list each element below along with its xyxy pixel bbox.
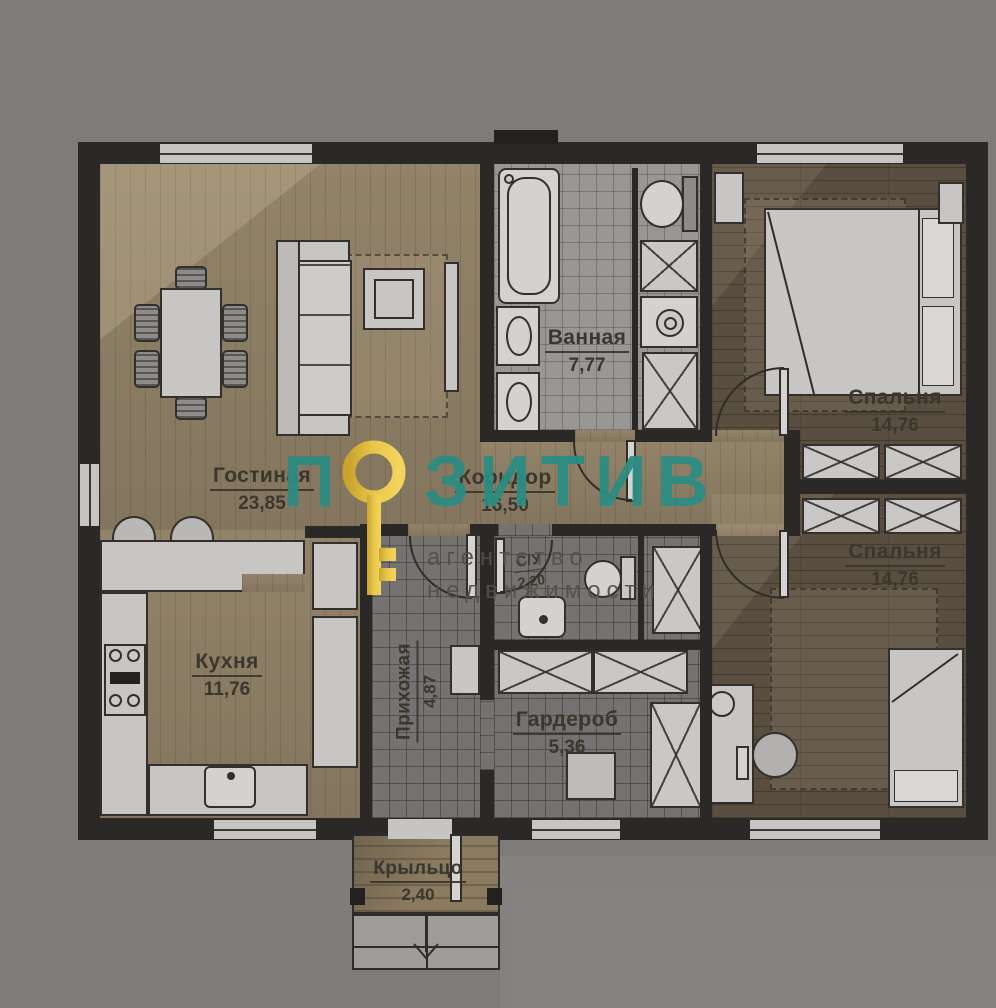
vent-stub	[494, 130, 558, 144]
tv-console	[444, 262, 459, 392]
window-living	[160, 144, 312, 163]
label-wardrobe-area: 5,36	[549, 737, 586, 759]
label-bedroom-top-area: 14,76	[871, 415, 919, 437]
wall-bedroom-bottom-left	[700, 530, 712, 818]
label-hallway-area: 4,87	[421, 675, 441, 708]
wc-door-threshold	[498, 524, 552, 536]
window-left-wall	[80, 464, 99, 526]
desk-lamp	[709, 691, 735, 717]
label-kitchen-name: Кухня	[192, 650, 261, 677]
kitchen-faucet	[227, 772, 235, 780]
bath-toilet-bowl	[640, 180, 684, 228]
floor-plan-image: Гостиная 23,85 Кухня 11,76 Ванная 7,77 К…	[0, 0, 996, 1008]
built-in-wardrobe-bottom-1	[802, 498, 880, 534]
bathroom-door-leaf	[626, 440, 636, 502]
bath-cabinet	[640, 240, 698, 292]
label-living-name: Гостиная	[210, 464, 314, 491]
stove-burner-3	[109, 694, 122, 707]
kitchen-sink	[204, 766, 256, 808]
wc-faucet	[539, 615, 548, 624]
window-bedroom-top	[757, 144, 903, 163]
label-wardrobe: Гардероб 5,36	[492, 708, 642, 759]
kitchen-tall-cabinet	[312, 616, 358, 768]
label-bathroom: Ванная 7,77	[512, 326, 662, 377]
wall-bath-bottom-left	[494, 430, 575, 442]
label-bedroom-bottom: Спальня 14,76	[820, 540, 970, 591]
wall-bedrooms-divider	[798, 480, 966, 494]
label-bedroom-top-name: Спальня	[845, 386, 945, 413]
kitchen-counter-notch	[242, 574, 305, 592]
built-in-wardrobe-top-2	[884, 444, 962, 480]
bed-pillow-2	[922, 306, 954, 386]
label-corridor-area: 16,50	[481, 495, 529, 517]
entry-door-opening	[388, 819, 452, 839]
coffee-table-inner	[374, 279, 414, 319]
bedroom-bottom-door-leaf	[779, 530, 789, 598]
wall-corridor-wc	[552, 524, 716, 536]
label-kitchen: Кухня 11,76	[152, 650, 302, 701]
wardrobe-cabinet-top-2	[593, 650, 688, 694]
bed-pillow-1	[922, 218, 954, 298]
washer-drum-inner	[664, 317, 677, 330]
fridge	[312, 542, 358, 610]
wc-side-cabinet	[652, 546, 704, 634]
hallway-door-threshold	[408, 524, 470, 536]
sofa-arm-top	[298, 240, 350, 262]
label-bathroom-name: Ванная	[545, 326, 630, 353]
bedroom-top-nightstand	[938, 182, 964, 224]
wardrobe-ottoman	[566, 752, 616, 800]
label-porch-name: Крыльцо	[370, 858, 465, 883]
wall-kitchen-stub	[305, 526, 372, 538]
wc-toilet-tank	[620, 556, 636, 600]
bedroom-bottom-bed	[888, 648, 964, 808]
desk-monitor	[736, 746, 749, 780]
bathtub-inner	[507, 177, 551, 295]
label-porch-area: 2,40	[401, 885, 434, 905]
label-bedroom-bottom-name: Спальня	[845, 540, 945, 567]
stove-burner-4	[127, 694, 140, 707]
wall-wc-cabinet-divider	[638, 536, 644, 640]
label-corridor-name: Коридор	[455, 466, 554, 493]
label-living: Гостиная 23,85	[187, 464, 337, 515]
window-kitchen	[214, 820, 316, 839]
dining-table	[160, 288, 222, 398]
coffee-table	[363, 268, 425, 330]
sofa-back	[276, 240, 300, 436]
stove	[104, 644, 146, 716]
stove-handle	[110, 672, 140, 684]
bed-pillow-divider	[918, 210, 920, 394]
bedroom-top-dresser	[714, 172, 744, 224]
label-hallway: Прихожая 4,87	[394, 617, 441, 767]
wc-sink	[518, 596, 566, 638]
label-porch: Крыльцо 2,40	[343, 858, 493, 905]
bedroom-top-door-threshold	[712, 430, 784, 442]
wall-wc-wardrobe	[494, 640, 712, 650]
stove-burner-2	[127, 649, 140, 662]
desk-chair	[752, 732, 798, 778]
label-bathroom-area: 7,77	[569, 355, 606, 377]
bathtub	[498, 168, 560, 304]
bedroom-bottom-pillow	[894, 770, 958, 802]
dining-chair-left-2	[134, 350, 160, 388]
wardrobe-cabinet-top-1	[498, 650, 593, 694]
label-bedroom-bottom-area: 14,76	[871, 569, 919, 591]
label-wardrobe-name: Гардероб	[513, 708, 621, 735]
porch-step-divider	[426, 916, 428, 968]
label-wc-name: С/У	[512, 550, 546, 573]
bathtub-faucet	[504, 174, 514, 184]
bath-sink-2	[496, 372, 540, 432]
dining-chair-left-1	[134, 304, 160, 342]
hallway-door-leaf	[466, 534, 477, 598]
wardrobe-cabinet-right	[650, 702, 702, 808]
bedroom-top-door-leaf	[779, 368, 789, 436]
label-living-area: 23,85	[238, 493, 286, 515]
built-in-wardrobe-top-1	[802, 444, 880, 480]
label-corridor: Коридор 16,50	[430, 466, 580, 517]
wall-kitchen-hallway	[360, 536, 372, 818]
sofa-arm-bottom	[298, 414, 350, 436]
label-hallway-name: Прихожая	[394, 640, 419, 743]
hallway-cabinet	[450, 645, 480, 695]
label-bedroom-top: Спальня 14,76	[820, 386, 970, 437]
outside-shade	[500, 856, 996, 1008]
built-in-wardrobe-bottom-2	[884, 498, 962, 534]
dining-chair-right-1	[222, 304, 248, 342]
wall-living-bath	[480, 164, 494, 442]
wc-toilet-bowl	[584, 560, 622, 598]
bedroom-top-bed	[764, 208, 962, 396]
bath-toilet-tank	[682, 176, 698, 232]
dining-chair-right-2	[222, 350, 248, 388]
label-kitchen-area: 11,76	[204, 679, 251, 701]
bedroom-bottom-door-threshold	[716, 524, 784, 536]
window-wardrobe	[532, 820, 620, 839]
bath-sink-2-basin	[506, 382, 532, 422]
porch-steps	[352, 914, 500, 970]
sofa-seat	[298, 260, 352, 416]
dining-chair-bottom	[175, 396, 207, 420]
wall-bedroom-top-left	[700, 164, 712, 442]
stove-burner-1	[109, 649, 122, 662]
window-bedroom-bottom	[750, 820, 880, 839]
wall-hall-wardrobe-b	[480, 770, 494, 818]
wall-bath-fixture-divider	[632, 168, 638, 430]
dining-chair-top	[175, 266, 207, 290]
